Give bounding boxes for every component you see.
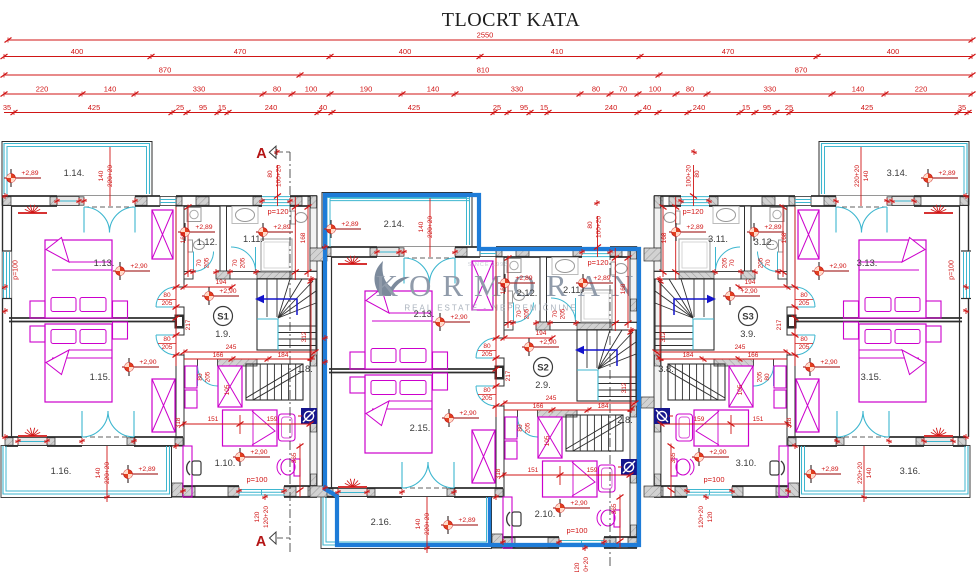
svg-text:35: 35 (958, 103, 966, 112)
svg-text:810: 810 (477, 66, 490, 75)
svg-text:330: 330 (193, 85, 206, 94)
svg-text:140: 140 (104, 85, 117, 94)
svg-text:1.12.: 1.12. (197, 237, 218, 247)
svg-text:400: 400 (399, 47, 412, 56)
svg-text:p=100: p=100 (566, 526, 587, 535)
svg-text:p=120: p=120 (587, 258, 608, 267)
svg-text:+2,89: +2,89 (341, 221, 358, 228)
svg-text:159: 159 (694, 416, 705, 423)
svg-text:312: 312 (660, 331, 667, 342)
svg-text:25: 25 (785, 103, 793, 112)
svg-text:168: 168 (300, 232, 307, 243)
svg-text:2.10.: 2.10. (535, 509, 556, 519)
svg-text:217: 217 (776, 319, 783, 330)
svg-text:120+20: 120+20 (583, 557, 590, 572)
svg-text:168: 168 (180, 232, 187, 243)
svg-text:205: 205 (482, 395, 493, 402)
svg-text:A: A (256, 146, 267, 162)
svg-text:3.10.: 3.10. (736, 458, 757, 468)
svg-text:330: 330 (511, 85, 524, 94)
svg-text:35: 35 (3, 103, 11, 112)
svg-text:410: 410 (551, 47, 564, 56)
svg-text:+2,89: +2,89 (515, 275, 532, 282)
svg-text:220+20: 220+20 (424, 513, 431, 535)
svg-text:205: 205 (524, 308, 531, 319)
svg-text:100: 100 (305, 85, 318, 94)
svg-text:80: 80 (163, 336, 171, 343)
svg-text:220+20: 220+20 (107, 165, 114, 187)
svg-text:+2,90: +2,90 (219, 288, 236, 295)
svg-text:140: 140 (866, 467, 873, 478)
svg-text:3.13.: 3.13. (857, 258, 878, 268)
svg-text:40: 40 (643, 103, 651, 112)
svg-text:365: 365 (611, 503, 618, 514)
svg-text:100: 100 (649, 85, 662, 94)
svg-text:80: 80 (517, 424, 524, 432)
svg-text:205: 205 (560, 308, 567, 319)
svg-text:3.16.: 3.16. (900, 466, 921, 476)
svg-text:70: 70 (552, 310, 559, 318)
svg-text:140: 140 (852, 85, 865, 94)
svg-text:70: 70 (196, 259, 203, 267)
svg-text:+2,89: +2,89 (21, 170, 38, 177)
svg-text:SINCE 1993: SINCE 1993 (468, 262, 509, 268)
svg-text:194: 194 (536, 330, 547, 337)
svg-text:105: 105 (544, 435, 551, 446)
svg-text:168: 168 (781, 232, 788, 243)
svg-text:166: 166 (748, 352, 759, 359)
svg-text:+2,90: +2,90 (130, 263, 147, 270)
svg-text:120+20: 120+20 (698, 506, 705, 528)
svg-text:168: 168 (661, 232, 668, 243)
svg-text:80: 80 (764, 373, 771, 381)
svg-text:3.15.: 3.15. (861, 372, 882, 382)
svg-text:1.14.: 1.14. (64, 168, 85, 178)
svg-text:+2,89: +2,89 (686, 224, 703, 231)
svg-text:220: 220 (36, 85, 49, 94)
svg-text:312: 312 (621, 382, 628, 393)
svg-text:3.14.: 3.14. (887, 168, 908, 178)
svg-text:100+20: 100+20 (276, 165, 283, 187)
svg-text:2.16.: 2.16. (371, 517, 392, 527)
svg-text:140: 140 (427, 85, 440, 94)
svg-text:245: 245 (226, 344, 237, 351)
svg-text:120: 120 (707, 511, 714, 522)
svg-text:+2,90: +2,90 (820, 359, 837, 366)
svg-text:80: 80 (483, 343, 491, 350)
svg-text:80: 80 (686, 85, 694, 94)
svg-text:80: 80 (267, 170, 274, 178)
svg-text:3.11.: 3.11. (708, 234, 728, 244)
svg-text:1.9.: 1.9. (215, 329, 231, 339)
svg-text:+2,89: +2,89 (593, 275, 610, 282)
svg-text:80: 80 (163, 292, 171, 299)
svg-text:166: 166 (533, 403, 544, 410)
svg-text:80: 80 (273, 85, 281, 94)
svg-text:+2,89: +2,89 (138, 466, 155, 473)
svg-text:105: 105 (737, 384, 744, 395)
svg-text:80: 80 (592, 85, 600, 94)
svg-text:168: 168 (500, 283, 507, 294)
svg-text:205: 205 (525, 422, 532, 433)
svg-text:p=100: p=100 (949, 260, 956, 280)
svg-text:KORMORAN: KORMORAN (376, 268, 645, 303)
svg-text:2.15.: 2.15. (410, 423, 431, 433)
svg-text:p=120: p=120 (267, 207, 288, 216)
svg-text:80: 80 (694, 170, 701, 178)
svg-text:318: 318 (495, 468, 502, 479)
svg-text:+2,90: +2,90 (450, 314, 467, 321)
svg-text:80: 80 (197, 373, 204, 381)
svg-text:2.8.: 2.8. (617, 415, 633, 425)
svg-text:184: 184 (278, 352, 289, 359)
svg-text:+2,89: +2,89 (938, 170, 955, 177)
svg-text:105: 105 (224, 384, 231, 395)
svg-text:TLOCRT KATA: TLOCRT KATA (442, 9, 580, 31)
svg-text:425: 425 (408, 103, 421, 112)
svg-text:205: 205 (240, 257, 247, 268)
svg-text:425: 425 (861, 103, 874, 112)
svg-text:159: 159 (587, 467, 598, 474)
svg-text:151: 151 (753, 416, 764, 423)
svg-text:1.15.: 1.15. (90, 372, 111, 382)
svg-text:2.14.: 2.14. (384, 219, 405, 229)
svg-text:S1: S1 (217, 312, 229, 323)
svg-text:70: 70 (516, 310, 523, 318)
svg-text:3.12.: 3.12. (754, 237, 775, 247)
svg-text:220+20: 220+20 (854, 165, 861, 187)
svg-text:400: 400 (71, 47, 84, 56)
svg-text:95: 95 (199, 103, 207, 112)
svg-text:+2,90: +2,90 (459, 410, 476, 417)
svg-text:159: 159 (267, 416, 278, 423)
svg-text:205: 205 (722, 257, 729, 268)
svg-text:p=120: p=120 (682, 207, 703, 216)
svg-text:245: 245 (546, 395, 557, 402)
svg-text:95: 95 (763, 103, 771, 112)
svg-text:+2,90: +2,90 (539, 339, 556, 346)
svg-text:25: 25 (493, 103, 501, 112)
svg-text:240: 240 (693, 103, 706, 112)
svg-text:1.8.: 1.8. (297, 364, 313, 374)
svg-text:194: 194 (216, 279, 227, 286)
svg-text:+2,90: +2,90 (570, 500, 587, 507)
svg-text:70: 70 (619, 85, 627, 94)
svg-text:70: 70 (765, 259, 772, 267)
svg-text:425: 425 (88, 103, 101, 112)
svg-text:205: 205 (757, 371, 764, 382)
svg-text:1.13.: 1.13. (94, 258, 115, 268)
svg-text:205: 205 (799, 344, 810, 351)
svg-text:2.12.: 2.12. (517, 288, 538, 298)
svg-text:365: 365 (670, 452, 677, 463)
svg-text:205: 205 (162, 344, 173, 351)
svg-text:p=100: p=100 (13, 260, 20, 280)
svg-text:25: 25 (176, 103, 184, 112)
svg-text:330: 330 (764, 85, 777, 94)
svg-text:205: 205 (482, 351, 493, 358)
svg-text:205: 205 (799, 300, 810, 307)
svg-text:220+20: 220+20 (427, 216, 434, 238)
svg-text:184: 184 (683, 352, 694, 359)
svg-text:2550: 2550 (477, 31, 494, 40)
svg-text:40: 40 (319, 103, 327, 112)
svg-text:470: 470 (234, 47, 247, 56)
svg-text:A: A (256, 534, 267, 550)
svg-text:+2,90: +2,90 (250, 449, 267, 456)
svg-text:+2,89: +2,89 (764, 224, 781, 231)
svg-text:205: 205 (758, 257, 765, 268)
svg-text:870: 870 (795, 66, 808, 75)
svg-text:220+20: 220+20 (857, 462, 864, 484)
svg-text:15: 15 (540, 103, 548, 112)
svg-text:217: 217 (185, 319, 192, 330)
svg-text:194: 194 (745, 279, 756, 286)
svg-text:100+20: 100+20 (596, 216, 603, 238)
svg-text:80: 80 (587, 221, 594, 229)
svg-text:870: 870 (159, 66, 172, 75)
svg-text:3.9.: 3.9. (740, 329, 756, 339)
svg-text:312: 312 (301, 331, 308, 342)
svg-text:220+20: 220+20 (104, 462, 111, 484)
svg-text:80: 80 (483, 387, 491, 394)
svg-text:184: 184 (598, 403, 609, 410)
svg-text:2.9.: 2.9. (535, 380, 551, 390)
svg-text:140: 140 (98, 170, 105, 181)
svg-text:15: 15 (218, 103, 226, 112)
svg-text:15: 15 (742, 103, 750, 112)
svg-text:318: 318 (175, 417, 182, 428)
svg-text:240: 240 (605, 103, 618, 112)
svg-text:140: 140 (418, 221, 425, 232)
svg-text:205: 205 (162, 300, 173, 307)
svg-text:205: 205 (205, 371, 212, 382)
svg-text:151: 151 (528, 467, 539, 474)
svg-text:+2,90: +2,90 (829, 263, 846, 270)
svg-text:220: 220 (915, 85, 928, 94)
svg-text:70: 70 (232, 259, 239, 267)
svg-text:140: 140 (863, 170, 870, 181)
svg-text:+2,90: +2,90 (139, 359, 156, 366)
svg-text:470: 470 (722, 47, 735, 56)
svg-text:p=100: p=100 (703, 475, 724, 484)
svg-text:+2,89: +2,89 (195, 224, 212, 231)
svg-text:120: 120 (574, 562, 581, 572)
svg-text:S2: S2 (537, 363, 549, 374)
svg-text:318: 318 (786, 417, 793, 428)
svg-text:100+20: 100+20 (686, 165, 693, 187)
svg-text:2.13.: 2.13. (414, 309, 435, 319)
svg-text:217: 217 (505, 370, 512, 381)
svg-text:95: 95 (520, 103, 528, 112)
svg-text:240: 240 (265, 103, 278, 112)
svg-text:3.8.: 3.8. (658, 364, 674, 374)
svg-text:168: 168 (620, 283, 627, 294)
svg-text:1.16.: 1.16. (51, 466, 72, 476)
svg-text:400: 400 (887, 47, 900, 56)
svg-text:p=100: p=100 (246, 475, 267, 484)
svg-text:140: 140 (95, 467, 102, 478)
svg-text:245: 245 (735, 344, 746, 351)
svg-text:70: 70 (729, 259, 736, 267)
svg-text:+2,89: +2,89 (458, 517, 475, 524)
svg-text:120: 120 (254, 511, 261, 522)
svg-text:80: 80 (800, 336, 808, 343)
svg-text:+2,90: +2,90 (740, 288, 757, 295)
svg-text:+2,89: +2,89 (273, 224, 290, 231)
svg-text:120+20: 120+20 (263, 506, 270, 528)
svg-text:151: 151 (208, 416, 219, 423)
svg-text:S3: S3 (742, 312, 754, 323)
svg-text:+2,90: +2,90 (709, 449, 726, 456)
svg-text:166: 166 (213, 352, 224, 359)
svg-text:190: 190 (360, 85, 373, 94)
svg-text:1.10.: 1.10. (215, 458, 236, 468)
svg-text:205: 205 (204, 257, 211, 268)
svg-text:365: 365 (291, 452, 298, 463)
svg-text:140: 140 (415, 518, 422, 529)
svg-text:+2,89: +2,89 (821, 466, 838, 473)
svg-text:80: 80 (800, 292, 808, 299)
